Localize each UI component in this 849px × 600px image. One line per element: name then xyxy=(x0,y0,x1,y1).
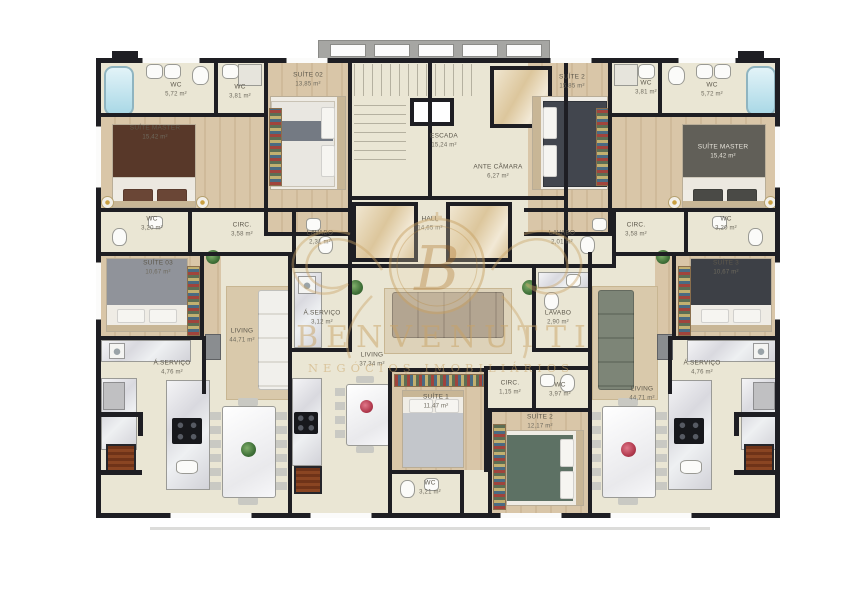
elevator xyxy=(352,202,418,262)
cooktop xyxy=(172,418,202,444)
wall-stub xyxy=(112,51,138,59)
wall-segment xyxy=(96,336,206,340)
wall-segment xyxy=(388,470,464,474)
room-label-lavabo-right: LAVABO2,01 m² xyxy=(549,230,575,247)
room-label-suite-master-right: SUÍTE MASTER15,42 m² xyxy=(698,144,748,161)
sink xyxy=(222,64,239,79)
sink xyxy=(566,274,581,287)
room-label-circ-left: CIRC.3,58 m² xyxy=(231,222,253,239)
room-label-servico-center: Á.SERVIÇO3,12 m² xyxy=(303,310,340,327)
wall-segment xyxy=(484,366,592,370)
bathtub xyxy=(104,66,134,116)
elevator xyxy=(446,202,512,262)
room-label-wc-left: WC3,20 m² xyxy=(141,216,163,233)
room-label-hall: HALL14,65 m² xyxy=(417,216,442,233)
bed xyxy=(682,124,766,208)
ledge-window xyxy=(374,44,410,57)
room-label-living-center: LIVING37,34 m² xyxy=(359,352,384,369)
wall-segment xyxy=(734,412,739,436)
wall-segment xyxy=(348,58,352,268)
kitchen-sink xyxy=(753,382,775,410)
wall-segment xyxy=(684,212,688,256)
wall-segment xyxy=(460,474,464,513)
wall-segment xyxy=(532,268,536,352)
room-label-living-right: LIVING44,71 m² xyxy=(629,386,654,403)
room-label-servico-right: Á.SERVIÇO4,76 m² xyxy=(683,360,720,377)
ledge-window xyxy=(418,44,454,57)
toilet xyxy=(544,292,559,310)
sink xyxy=(638,64,655,79)
washing-machine xyxy=(753,343,769,359)
room-label-wc-right: WC3,20 m² xyxy=(715,216,737,233)
wall-segment xyxy=(348,268,352,350)
room-label-wc-center: WC3,97 m² xyxy=(549,382,571,399)
wardrobe xyxy=(269,108,282,186)
wall-segment xyxy=(532,348,592,352)
wardrobe xyxy=(678,266,691,336)
wall-segment xyxy=(734,470,780,475)
wall-segment xyxy=(532,368,536,410)
toilet xyxy=(400,480,415,498)
window xyxy=(678,58,736,63)
stairs xyxy=(354,100,406,160)
wall-segment xyxy=(668,336,672,394)
wall-segment xyxy=(188,212,192,256)
window xyxy=(775,262,780,320)
sink xyxy=(592,218,607,231)
ledge-window xyxy=(506,44,542,57)
room-label-suite03-left: SUÍTE 0310,67 m² xyxy=(143,260,173,277)
sink xyxy=(164,64,181,79)
dining-chairs xyxy=(210,412,221,490)
washing-machine xyxy=(298,276,316,294)
room-label-ante-camara: ANTE CÂMARA6,27 m² xyxy=(473,164,522,181)
room-label-wc-suite-right: WC3,81 m² xyxy=(635,80,657,97)
toilet xyxy=(192,66,209,85)
room-label-suite-master-left: SUÍTE MASTER15,42 m² xyxy=(130,125,180,142)
bed xyxy=(506,430,584,506)
dining-chair xyxy=(356,376,374,383)
wall-segment xyxy=(96,113,268,117)
table-centerpiece xyxy=(360,400,373,413)
dining-table xyxy=(346,384,390,446)
room-label-suite2-center: SUÍTE 212,17 m² xyxy=(527,414,553,431)
window xyxy=(96,126,101,188)
room-label-circ-right: CIRC.3,58 m² xyxy=(625,222,647,239)
wardrobe xyxy=(493,424,506,510)
stairs xyxy=(354,64,476,96)
sink xyxy=(146,64,163,79)
ledge-window xyxy=(462,44,498,57)
wall-segment xyxy=(292,208,296,268)
wall-segment xyxy=(202,336,206,394)
window xyxy=(310,513,372,518)
cooktop xyxy=(674,418,704,444)
washing-machine xyxy=(109,343,125,359)
room-label-suite02-left: SUÍTE 0213,85 m² xyxy=(293,72,323,89)
sofa xyxy=(598,290,634,390)
wall-segment xyxy=(734,412,780,417)
wall-segment xyxy=(488,408,592,412)
wall-segment xyxy=(524,208,776,212)
window xyxy=(610,513,692,518)
wall-segment xyxy=(484,368,488,472)
room-label-wc-suite-left: WC3,81 m² xyxy=(229,84,251,101)
room-label-suite2-right: SUÍTE 215,85 m² xyxy=(559,74,585,91)
wall-segment xyxy=(588,252,592,518)
room-label-wc-suite1-center: WC3,21 m² xyxy=(419,480,441,497)
wall-segment xyxy=(96,470,142,475)
ledge-window xyxy=(330,44,366,57)
room-label-lavabo-center: LAVABO2,90 m² xyxy=(545,310,571,327)
wall-segment xyxy=(488,412,492,513)
wall-segment xyxy=(428,63,432,198)
wall-segment xyxy=(348,264,592,268)
dining-chair xyxy=(238,497,258,505)
table-centerpiece xyxy=(621,442,636,457)
sink xyxy=(696,64,713,79)
wall-segment xyxy=(388,368,392,513)
wall-segment xyxy=(96,208,352,212)
room-label-living-left: LIVING44,71 m² xyxy=(229,328,254,345)
dining-chair xyxy=(238,398,258,406)
toilet xyxy=(112,228,127,246)
wall-segment xyxy=(288,264,356,268)
floor-plan: WC5,72 m² WC3,81 m² SUÍTE 0213,85 m² SUÍ… xyxy=(0,0,849,600)
bathtub xyxy=(746,66,776,116)
dining-chairs xyxy=(276,412,287,490)
room-label-escada: ESCADA15,24 m² xyxy=(430,133,458,150)
wall-segment xyxy=(672,256,676,340)
plan-shadow xyxy=(150,527,710,530)
wall-segment xyxy=(388,368,488,372)
wall-stub xyxy=(738,51,764,59)
grill xyxy=(744,444,774,472)
cooktop xyxy=(294,412,318,434)
wall-segment xyxy=(288,252,292,518)
toilet xyxy=(748,228,763,246)
dining-chairs xyxy=(335,388,345,440)
window xyxy=(550,58,592,63)
wall-segment xyxy=(200,256,204,340)
wall-segment xyxy=(96,412,142,417)
vanity-counter xyxy=(538,272,590,288)
window xyxy=(170,513,252,518)
wall-segment xyxy=(658,63,662,117)
wall-segment xyxy=(214,63,218,117)
kitchen-sink xyxy=(103,382,125,410)
room-label-suite1-center: SUÍTE 111,47 m² xyxy=(423,394,449,411)
window xyxy=(775,126,780,188)
wall-segment xyxy=(138,412,143,436)
room-label-wc-master-right: WC5,72 m² xyxy=(701,82,723,99)
window xyxy=(96,262,101,320)
room-label-servico-left: Á.SERVIÇO4,76 m² xyxy=(153,360,190,377)
table-centerpiece xyxy=(241,442,256,457)
island-sink xyxy=(176,460,198,474)
wardrobe xyxy=(394,374,484,387)
window xyxy=(286,58,328,63)
dining-chairs xyxy=(656,412,667,490)
island-sink xyxy=(680,460,702,474)
dining-chair xyxy=(618,497,638,505)
room-label-circ-center: CIRC.1,15 m² xyxy=(499,380,521,397)
sofa xyxy=(258,290,290,390)
room-label-suite3-right: SUÍTE 310,67 m² xyxy=(713,260,739,277)
dining-chair xyxy=(356,446,374,453)
wall-segment xyxy=(348,196,568,200)
wall-segment xyxy=(612,252,780,256)
room-label-lavabo-left: LAVABO2,31 m² xyxy=(307,230,333,247)
sofa xyxy=(392,292,504,338)
toilet xyxy=(668,66,685,85)
wardrobe xyxy=(187,266,200,336)
window xyxy=(500,513,562,518)
sink xyxy=(714,64,731,79)
stair-void xyxy=(410,98,454,126)
grill xyxy=(106,444,136,472)
wall-segment xyxy=(288,348,352,352)
grill xyxy=(294,466,322,494)
wall-segment xyxy=(96,252,292,256)
wall-segment xyxy=(608,113,776,117)
room-label-wc-master-left: WC5,72 m² xyxy=(165,82,187,99)
tv-cabinet xyxy=(205,334,221,360)
wall-segment xyxy=(670,336,776,340)
wall-segment xyxy=(612,208,616,268)
window xyxy=(142,58,200,63)
